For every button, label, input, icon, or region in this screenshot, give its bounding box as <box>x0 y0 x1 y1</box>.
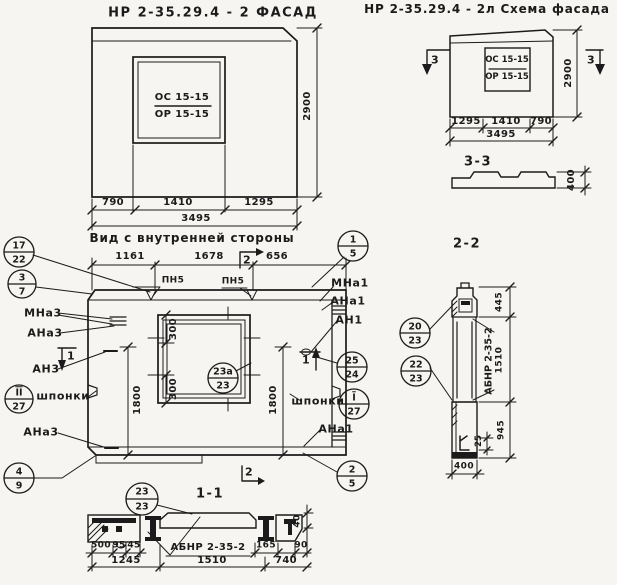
anchor-label-ana1: АНа1 <box>330 296 365 307</box>
scheme-title: НР 2-35.29.4 - 2л Схема фасада <box>364 3 610 15</box>
bubble-17-22-top: 17 <box>12 241 25 251</box>
facade-dim-790: 790 <box>102 198 124 208</box>
dim-1510-right: 1510 <box>496 347 505 374</box>
dim-740: 740 <box>275 556 297 566</box>
bubble-i-27-top: I <box>352 393 356 403</box>
section-2-2 <box>430 283 516 479</box>
bubble-ii-27-bottom: 27 <box>12 402 25 412</box>
anchor-label-mna1: МНа1 <box>331 278 369 289</box>
bubble-1-5-bottom: 5 <box>350 249 357 259</box>
scheme-section-marker-right: 3 <box>587 55 595 66</box>
inner-dim-1678: 1678 <box>194 252 223 262</box>
section-marker-2-top: 2 <box>243 255 251 266</box>
section-3-3-label: 3-3 <box>464 156 492 169</box>
dim-500: 500 <box>91 542 111 551</box>
bubble-4-9-bottom: 9 <box>16 481 23 491</box>
section-1-1-label: 1-1 <box>196 488 224 501</box>
anchor-label-ana1-bottom: АНа1 <box>318 424 353 435</box>
dim-165: 165 <box>256 542 276 551</box>
bubble-3-7-bottom: 7 <box>19 287 26 297</box>
facade-dim-total: 3495 <box>181 214 210 224</box>
bubble-25-24-bottom: 24 <box>345 370 358 380</box>
bubble-17-22-bottom: 22 <box>12 255 25 265</box>
anchor-label-an1: АН1 <box>335 315 362 326</box>
bubble-22-23-top: 22 <box>409 360 422 370</box>
bubble-20-23-top: 20 <box>408 322 421 332</box>
section-marker-1-left: 1 <box>67 351 75 362</box>
weld-mark-pn5-left: ПН5 <box>162 277 185 286</box>
dim-445: 445 <box>496 292 505 312</box>
dim-400-bottom: 400 <box>454 463 474 472</box>
bubble-25-24-top: 25 <box>345 356 358 366</box>
drawing-linework <box>0 0 617 585</box>
anchor-label-mna3: МНа3 <box>24 308 62 319</box>
anchor-label-an3: АН3 <box>32 364 59 375</box>
bubble-20-23-bottom: 23 <box>408 336 421 346</box>
bubble-i-27-bottom: 27 <box>347 407 360 417</box>
bubble-3-7-top: 3 <box>19 273 26 283</box>
section-3-3-dim-400: 400 <box>567 169 577 191</box>
scheme-dim-1410: 1410 <box>491 117 520 127</box>
beam-mark-2-2: АБНР 2-35-2 <box>484 327 494 394</box>
inner-dim-1161: 1161 <box>115 252 144 262</box>
scheme-dim-height: 2900 <box>564 58 574 87</box>
anchor-label-ana3-bottom: АНа3 <box>23 427 58 438</box>
bubble-ii-27-top: II <box>15 388 22 398</box>
dim-45: 45 <box>127 542 140 551</box>
bubble-23a-23-top: 23а <box>213 367 233 377</box>
bubble-1-5-top: 1 <box>350 235 357 245</box>
beam-mark-1-1: АБНР 2-35-2 <box>170 543 245 553</box>
dim-90: 90 <box>294 542 307 551</box>
bubble-23-23-bottom: 23 <box>135 502 148 512</box>
facade-dim-1410: 1410 <box>163 198 192 208</box>
dim-95: 95 <box>112 542 125 551</box>
scheme-opening-mark-bottom: ОР 15-15 <box>485 73 529 82</box>
scheme-view <box>422 26 605 195</box>
facade-opening-mark-bottom: ОР 15-15 <box>155 110 210 120</box>
inner-dim-300-bottom: 300 <box>169 378 179 400</box>
dim-1245: 1245 <box>111 556 140 566</box>
scheme-opening-mark-top: ОС 15-15 <box>485 56 529 65</box>
keys-label-right: шпонки <box>291 396 344 407</box>
facade-title: НР 2-35.29.4 - 2 ФАСАД <box>108 7 318 20</box>
dim-40: 40 <box>294 514 303 527</box>
inner-dim-1800-left: 1800 <box>133 385 143 414</box>
inner-view-title: Вид с внутренней стороны <box>90 232 295 244</box>
dim-1510-bottom: 1510 <box>197 556 226 566</box>
bubble-23a-23-bottom: 23 <box>216 381 229 391</box>
drawing-sheet: НР 2-35.29.4 - 2 ФАСАД ОС 15-15 ОР 15-15… <box>0 0 617 585</box>
bubble-4-9-top: 4 <box>16 467 23 477</box>
weld-mark-pn5-right: ПН5 <box>222 278 245 287</box>
inner-dim-300-top: 300 <box>169 318 179 340</box>
dim-945: 945 <box>498 420 507 440</box>
dim-25: 25 <box>475 435 484 447</box>
facade-dim-1295: 1295 <box>244 198 273 208</box>
section-marker-2-bottom: 2 <box>245 467 253 478</box>
scheme-dim-790: 790 <box>530 117 552 127</box>
section-marker-1-right: 1 <box>302 355 310 366</box>
bubble-22-23-bottom: 23 <box>409 374 422 384</box>
bubble-23-23-top: 23 <box>135 487 148 497</box>
inner-dim-656: 656 <box>266 252 288 262</box>
keys-label-left: шпонки <box>36 391 89 402</box>
inner-view <box>33 248 350 485</box>
scheme-section-marker-left: 3 <box>431 55 439 66</box>
anchor-label-ana3: АНа3 <box>27 328 62 339</box>
facade-dim-height: 2900 <box>303 91 313 120</box>
bubble-2-5-top: 2 <box>349 465 356 475</box>
bubble-2-5-bottom: 5 <box>349 479 356 489</box>
facade-opening-mark-top: ОС 15-15 <box>155 93 210 103</box>
scheme-dim-total: 3495 <box>486 130 515 140</box>
scheme-dim-1295: 1295 <box>451 117 480 127</box>
section-2-2-label: 2-2 <box>453 238 481 251</box>
inner-dim-1800-right: 1800 <box>269 385 279 414</box>
